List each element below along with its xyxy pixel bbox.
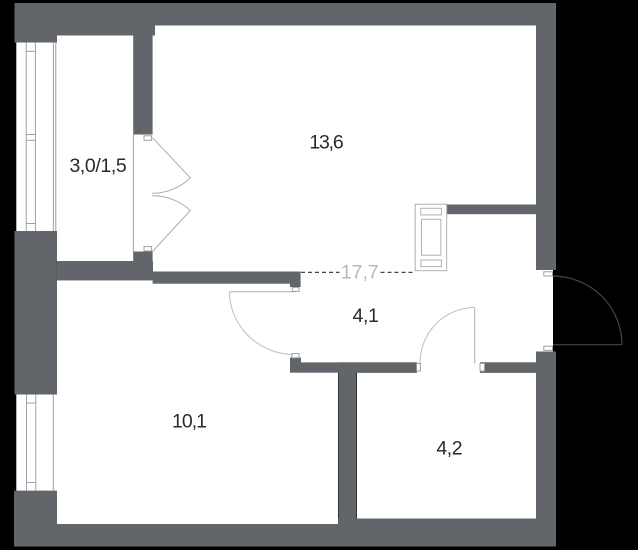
svg-text:4,1: 4,1 — [353, 305, 379, 327]
svg-text:3,0/1,5: 3,0/1,5 — [69, 155, 126, 177]
svg-text:10,1: 10,1 — [172, 410, 206, 432]
svg-text:13,6: 13,6 — [309, 132, 343, 154]
svg-text:4,2: 4,2 — [436, 438, 462, 460]
svg-text:17,7: 17,7 — [341, 261, 379, 283]
